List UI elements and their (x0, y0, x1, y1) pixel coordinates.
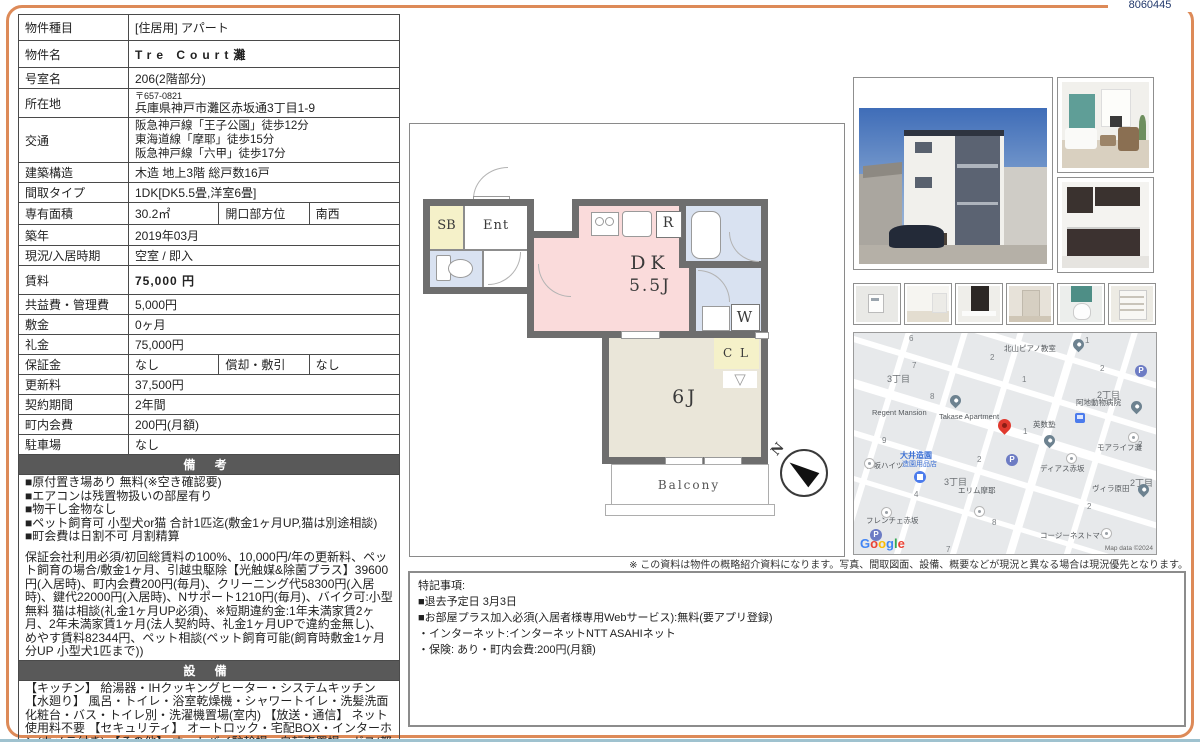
photo-thumb-toilet (1057, 283, 1105, 325)
row-value: 37,500円 (129, 375, 400, 395)
remarks-row: ■原付置き場あり 無料(※空き確認要) ■エアコンは残置物扱いの部屋有り ■物干… (19, 475, 400, 661)
document-number: 8060445 (1108, 0, 1192, 12)
row-value: 30.2㎡ (129, 203, 219, 225)
map-label: 7 (912, 361, 916, 370)
disclaimer-text: ※ この資料は物件の概略紹介資料になります。写真、間取図面、設備、概要などが現況… (500, 556, 1188, 571)
thumb-image (1009, 286, 1051, 322)
photo-thumb-shelves (1108, 283, 1156, 325)
row-value: 1DK[DK5.5畳,洋室6畳] (129, 183, 400, 203)
floor-plan: ▽ SB Ent R DK 5.5J W C L 6J Balcony N (409, 123, 845, 557)
map-label: 9 (882, 436, 886, 445)
table-row: 建築構造 木造 地上3階 総戸数16戸 (19, 163, 400, 183)
upper-cabinet (1095, 187, 1140, 206)
window (755, 332, 769, 339)
room6-label: 6J (640, 386, 730, 408)
address-cell: 〒657-0821 兵庫県神戸市灘区赤坂通3丁目1-9 (129, 89, 400, 118)
dark-cabinet (971, 286, 990, 311)
counter (962, 311, 996, 316)
google-logo: Google (860, 536, 905, 551)
rent-value: 75,000 円 (129, 266, 400, 295)
shelf (1120, 296, 1144, 298)
map-attribution: Map data ©2024 (1105, 545, 1153, 552)
thumb-image (856, 286, 898, 322)
thumb-image (907, 286, 949, 322)
wall (423, 287, 534, 294)
location-map: 6217218912242873丁目2丁目3丁目2丁目北山ピアノ教室阿地動物病院… (853, 332, 1157, 555)
row-value: 木造 地上3階 総戸数16戸 (129, 163, 400, 183)
table-row: 物件種目 [住居用] アパート (19, 15, 400, 41)
note-line: ■退去予定日 3月3日 (418, 594, 1176, 610)
map-pin-icon (1129, 399, 1145, 415)
map-label: 2 (1100, 364, 1104, 373)
row-label: 物件名 (19, 41, 129, 68)
transit-line: 阪急神戸線「王子公園」徒歩12分 (135, 119, 393, 133)
table-row: 駐車場 なし (19, 435, 400, 455)
table-row: 現況/入居時期 空室 / 即入 (19, 246, 400, 266)
sliding-door (621, 331, 660, 339)
map-label: Takase Apartment (939, 412, 999, 421)
bed (1065, 128, 1096, 149)
building-window (915, 142, 932, 153)
burner-icon (595, 217, 604, 226)
remarks-header-row: 備 考 (19, 455, 400, 475)
row-label: 現況/入居時期 (19, 246, 129, 266)
thumb-image (1060, 286, 1102, 322)
row-value: 75,000円 (129, 335, 400, 355)
living-photo-image (1062, 82, 1149, 168)
map-label: フレンチェ赤坂 (866, 515, 919, 526)
accent-wall (1071, 286, 1092, 302)
map-label: 北山ピアノ教室 (1004, 343, 1056, 354)
photo-building-exterior (853, 77, 1053, 270)
building-window (915, 177, 932, 188)
table (1100, 135, 1116, 146)
wall (423, 199, 430, 294)
wall (572, 199, 768, 206)
floor (1009, 316, 1051, 322)
row-label: 間取タイプ (19, 183, 129, 203)
row-label: 礼金 (19, 335, 129, 355)
wall (602, 331, 609, 464)
row-label: 築年 (19, 225, 129, 246)
note-line: ・保険: あり・町内会費:200円(月額) (418, 642, 1176, 658)
table-row: 敷金 0ヶ月 (19, 315, 400, 335)
map-label: 1 (1022, 375, 1026, 384)
row-value: [住居用] アパート (129, 15, 400, 41)
row-label: 所在地 (19, 89, 129, 118)
map-label: ディアス赤坂 (1040, 463, 1084, 474)
shelf (1120, 303, 1144, 305)
row-label: 敷金 (19, 315, 129, 335)
table-row: 保証金 なし 償却・敷引 なし (19, 355, 400, 375)
thumb-image (1111, 286, 1153, 322)
toilet (1073, 303, 1090, 319)
equipment-row: 【キッチン】 給湯器・IHクッキングヒーター・システムキッチン 【水廻り】 風呂… (19, 680, 400, 742)
map-label: 6 (909, 334, 913, 343)
range-hood (1067, 187, 1093, 213)
sb-label: SB (430, 218, 463, 233)
bathtub-icon (691, 211, 721, 259)
remark-bullet: ■町会費は日割不可 月割精算 (25, 530, 393, 544)
photo-thumb-hallway (1006, 283, 1054, 325)
row-label: 開口部方位 (219, 203, 309, 225)
wall-panel (932, 293, 947, 313)
map-label: 1 (1085, 336, 1089, 345)
map-label: 3丁目 (887, 372, 910, 385)
ent-label: Ent (465, 218, 527, 233)
row-label: 号室名 (19, 68, 129, 89)
row-label: 交通 (19, 118, 129, 163)
postal-code: 〒657-0821 (135, 91, 393, 101)
table-row: 専有面積 30.2㎡ 開口部方位 南西 (19, 203, 400, 225)
dk-label: DK (605, 252, 695, 274)
counter-top (1067, 227, 1140, 230)
table-row: 所在地 〒657-0821 兵庫県神戸市灘区赤坂通3丁目1-9 (19, 89, 400, 118)
map-pin-icon (1075, 413, 1085, 423)
parked-car (889, 225, 944, 248)
wall (527, 199, 534, 338)
table-row: 共益費・管理費 5,000円 (19, 295, 400, 315)
row-value: 0ヶ月 (129, 315, 400, 335)
address: 兵庫県神戸市灘区赤坂通3丁目1-9 (135, 101, 393, 115)
equipment-header: 設 備 (19, 660, 400, 680)
road (859, 245, 1047, 264)
balcony-line (957, 202, 998, 206)
map-label: コージーネストマヤ (1040, 530, 1107, 541)
chair (1118, 127, 1139, 151)
map-pin-icon (1101, 528, 1112, 539)
row-value: なし (309, 355, 399, 375)
map-label: 8 (992, 518, 996, 527)
map-pin-icon: P (1135, 365, 1147, 377)
entrance-door-arc (473, 167, 508, 199)
map-label: エリム摩耶 (958, 485, 996, 496)
map-label: 2 (990, 353, 994, 362)
photo-kitchen (1057, 177, 1154, 273)
shelf (1120, 309, 1144, 311)
kitchen-photo-image (1062, 182, 1149, 268)
wall (423, 199, 534, 206)
building-panels (955, 136, 1000, 248)
map-label: 2 (1087, 502, 1091, 511)
remarks-header: 備 考 (19, 455, 400, 475)
intercom-screen (871, 298, 879, 302)
row-value: 2019年03月 (129, 225, 400, 246)
map-label: 阿地動物病院 (1076, 397, 1121, 408)
map-label: 英数塾 (1033, 419, 1056, 430)
row-label: 賃料 (19, 266, 129, 295)
floor (1062, 256, 1149, 268)
table-row: 賃料 75,000 円 (19, 266, 400, 295)
thumb-image (958, 286, 1000, 322)
map-label: 1 (1023, 427, 1027, 436)
note-line: ■お部屋プラス加入必須(入居者様専用Webサービス):無料(要アプリ登録) (418, 610, 1176, 626)
partition (482, 251, 484, 287)
refrigerator-label: R (656, 215, 680, 231)
remark-bullet: ■ペット飼育可 小型犬or猫 合計1匹迄(敷金1ヶ月UP,猫は別途相談) (25, 517, 393, 531)
photo-thumb-room (904, 283, 952, 325)
row-value: 空室 / 即入 (129, 246, 400, 266)
table-row: 町内会費 200円(月額) (19, 415, 400, 435)
map-pin-icon (914, 471, 926, 483)
row-value: 南西 (309, 203, 399, 225)
map-pin-icon (948, 393, 964, 409)
lower-cabinet (1067, 228, 1140, 256)
map-label: Regent Mansion (872, 408, 927, 417)
map-label: 8 (930, 392, 934, 401)
photo-thumb-kitchen-dark (955, 283, 1003, 325)
property-name: Tre Court灘 (129, 41, 400, 68)
transit-line: 東海道線「摩耶」徒歩15分 (135, 133, 393, 147)
map-pin-icon (974, 506, 985, 517)
photo-thumb-intercom (853, 283, 901, 325)
row-label: 保証金 (19, 355, 129, 375)
equipment-header-row: 設 備 (19, 660, 400, 680)
equipment-body: 【キッチン】 給湯器・IHクッキングヒーター・システムキッチン 【水廻り】 風呂… (19, 680, 400, 742)
map-label: 7 (946, 545, 950, 554)
hall-door-arc (488, 252, 521, 285)
map-pin-icon (864, 458, 875, 469)
row-label: 更新料 (19, 375, 129, 395)
row-value: 200円(月額) (129, 415, 400, 435)
row-value: なし (129, 355, 219, 375)
table-row: 契約期間 2年間 (19, 395, 400, 415)
door (1022, 290, 1041, 317)
remark-bullet: ■原付置き場あり 無料(※空き確認要) (25, 476, 393, 490)
remark-bullet: ■エアコンは残置物扱いの部屋有り (25, 490, 393, 504)
row-value: 206(2階部分) (129, 68, 400, 89)
table-row: 礼金 75,000円 (19, 335, 400, 355)
table-row: 交通 阪急神戸線「王子公園」徒歩12分 東海道線「摩耶」徒歩15分 阪急神戸線「… (19, 118, 400, 163)
toilet-bowl-icon (448, 259, 473, 278)
plant (1139, 115, 1147, 141)
property-table: 物件種目 [住居用] アパート 物件名 Tre Court灘 号室名 206(2… (18, 14, 400, 742)
row-label: 償却・敷引 (219, 355, 309, 375)
balcony-rim (605, 504, 775, 516)
row-label: 物件種目 (19, 15, 129, 41)
row-label: 建築構造 (19, 163, 129, 183)
map-pin-icon (1128, 432, 1139, 443)
property-sheet-page: 8060445 物件種目 [住居用] アパート 物件名 Tre Court灘 号… (0, 0, 1200, 742)
wall (609, 331, 621, 338)
map-label: 4 (914, 490, 918, 499)
map-label: ヴィラ原田 (1092, 483, 1130, 494)
map-label: モアライフ灘 (1097, 442, 1142, 453)
note-line: 特記事項: (418, 578, 1176, 594)
row-label: 駐車場 (19, 435, 129, 455)
building-photo-image (859, 108, 1047, 264)
remark-bullet: ■物干し金物なし (25, 503, 393, 517)
row-label: 専有面積 (19, 203, 129, 225)
row-value: 2年間 (129, 395, 400, 415)
note-line: ・インターネット:インターネットNTT ASAHIネット (418, 626, 1176, 642)
washer-label: W (731, 308, 758, 326)
table-row: 物件名 Tre Court灘 (19, 41, 400, 68)
table-row: 間取タイプ 1DK[DK5.5畳,洋室6畳] (19, 183, 400, 203)
vanity-sink-icon (702, 306, 730, 331)
transit-cell: 阪急神戸線「王子公園」徒歩12分 東海道線「摩耶」徒歩15分 阪急神戸線「六甲」… (129, 118, 400, 163)
burner-icon (605, 217, 614, 226)
row-label: 共益費・管理費 (19, 295, 129, 315)
map-pin-icon (1066, 453, 1077, 464)
transit-line: 阪急神戸線「六甲」徒歩17分 (135, 147, 393, 161)
row-value: なし (129, 435, 400, 455)
map-pin-icon: P (1006, 454, 1018, 466)
map-label: 2 (977, 455, 981, 464)
kitchen-sink-icon (622, 211, 652, 237)
tv (1110, 116, 1122, 126)
map-label: 造園用品店 (902, 459, 937, 469)
special-notes-box: 特記事項: ■退去予定日 3月3日 ■お部屋プラス加入必須(入居者様専用Webサ… (408, 571, 1186, 727)
photo-living-room (1057, 77, 1154, 173)
row-label: 契約期間 (19, 395, 129, 415)
row-label: 町内会費 (19, 415, 129, 435)
remarks-body: ■原付置き場あり 無料(※空き確認要) ■エアコンは残置物扱いの部屋有り ■物干… (19, 475, 400, 661)
table-row: 号室名 206(2階部分) (19, 68, 400, 89)
wall (527, 331, 609, 338)
map-pin-icon (881, 507, 892, 518)
row-value: 5,000円 (129, 295, 400, 315)
table-row: 築年 2019年03月 (19, 225, 400, 246)
shelf-unit (1119, 290, 1146, 321)
wall (658, 331, 768, 338)
closet-label: C L (714, 346, 759, 360)
balcony-label: Balcony (611, 478, 767, 492)
dk-size-label: 5.5J (605, 276, 695, 296)
remarks-paragraph: 保証会社利用必須/初回総賃料の100%、10,000円/年の更新料、ペット飼育の… (25, 551, 393, 659)
table-row: 更新料 37,500円 (19, 375, 400, 395)
balcony-line (957, 164, 998, 168)
